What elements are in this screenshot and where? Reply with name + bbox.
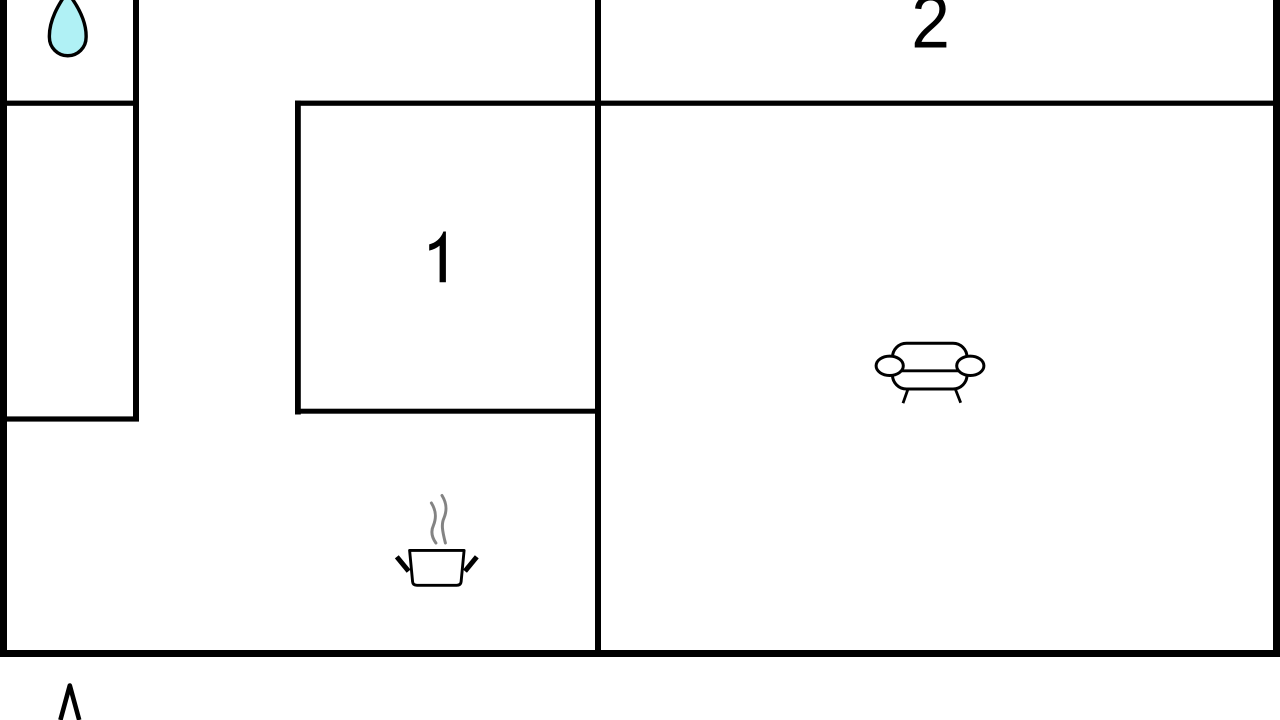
- svg-text:2: 2: [911, 0, 950, 64]
